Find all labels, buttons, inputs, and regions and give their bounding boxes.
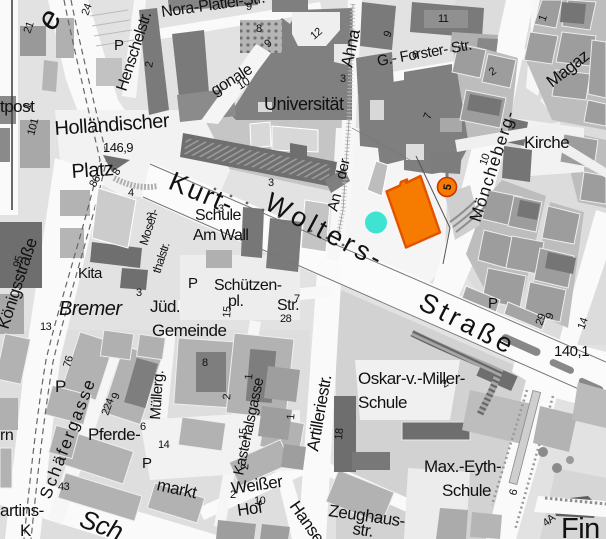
svg-text:Am Wall: Am Wall <box>193 227 248 244</box>
svg-text:15: 15 <box>237 428 250 441</box>
svg-text:Kita: Kita <box>78 265 103 282</box>
svg-text:Schule: Schule <box>358 393 407 412</box>
svg-text:Bremer: Bremer <box>59 298 123 320</box>
svg-text:140,1: 140,1 <box>554 343 589 360</box>
svg-text:Müllerg.: Müllerg. <box>147 370 167 420</box>
svg-text:Max.-Eyth-: Max.-Eyth- <box>424 457 501 476</box>
svg-text:3: 3 <box>340 73 346 85</box>
svg-text:rn: rn <box>0 427 13 444</box>
svg-text:K: K <box>20 521 32 539</box>
svg-text:Schule: Schule <box>442 481 491 500</box>
svg-text:P: P <box>488 295 498 312</box>
svg-text:P: P <box>142 455 152 472</box>
svg-text:8: 8 <box>256 23 262 35</box>
svg-text:P: P <box>114 37 124 54</box>
svg-text:3: 3 <box>218 203 224 215</box>
svg-text:Oskar-v.-Miller-: Oskar-v.-Miller- <box>358 369 465 388</box>
svg-text:7: 7 <box>294 293 300 305</box>
svg-text:Jüd.: Jüd. <box>150 297 180 316</box>
svg-text:18: 18 <box>333 428 346 441</box>
svg-text:Schützen-: Schützen- <box>214 277 282 294</box>
svg-text:146,9: 146,9 <box>103 140 133 155</box>
svg-text:8: 8 <box>202 357 208 369</box>
svg-text:43: 43 <box>58 481 70 493</box>
svg-text:Kirche: Kirche <box>524 133 569 152</box>
svg-text:6: 6 <box>140 421 146 433</box>
svg-text:3: 3 <box>268 177 274 189</box>
svg-text:10: 10 <box>254 495 266 507</box>
svg-text:28: 28 <box>280 313 292 325</box>
svg-text:2: 2 <box>146 211 152 223</box>
svg-text:Gemeinde: Gemeinde <box>152 321 226 340</box>
svg-text:4: 4 <box>128 187 134 199</box>
svg-text:15: 15 <box>221 306 234 319</box>
svg-text:6: 6 <box>412 49 418 61</box>
svg-text:9: 9 <box>246 1 252 13</box>
svg-text:artins-: artins- <box>0 501 44 520</box>
svg-text:11: 11 <box>438 13 449 25</box>
svg-text:14: 14 <box>158 439 170 451</box>
svg-text:2: 2 <box>230 489 236 501</box>
svg-text:str.: str. <box>351 519 374 539</box>
svg-text:P: P <box>55 377 66 396</box>
svg-text:P: P <box>188 275 198 292</box>
svg-text:3: 3 <box>136 287 142 299</box>
svg-text:Universität: Universität <box>264 94 344 114</box>
svg-text:Fin: Fin <box>561 513 600 539</box>
svg-text:Pferde-: Pferde- <box>88 425 140 444</box>
svg-text:13: 13 <box>40 321 52 333</box>
